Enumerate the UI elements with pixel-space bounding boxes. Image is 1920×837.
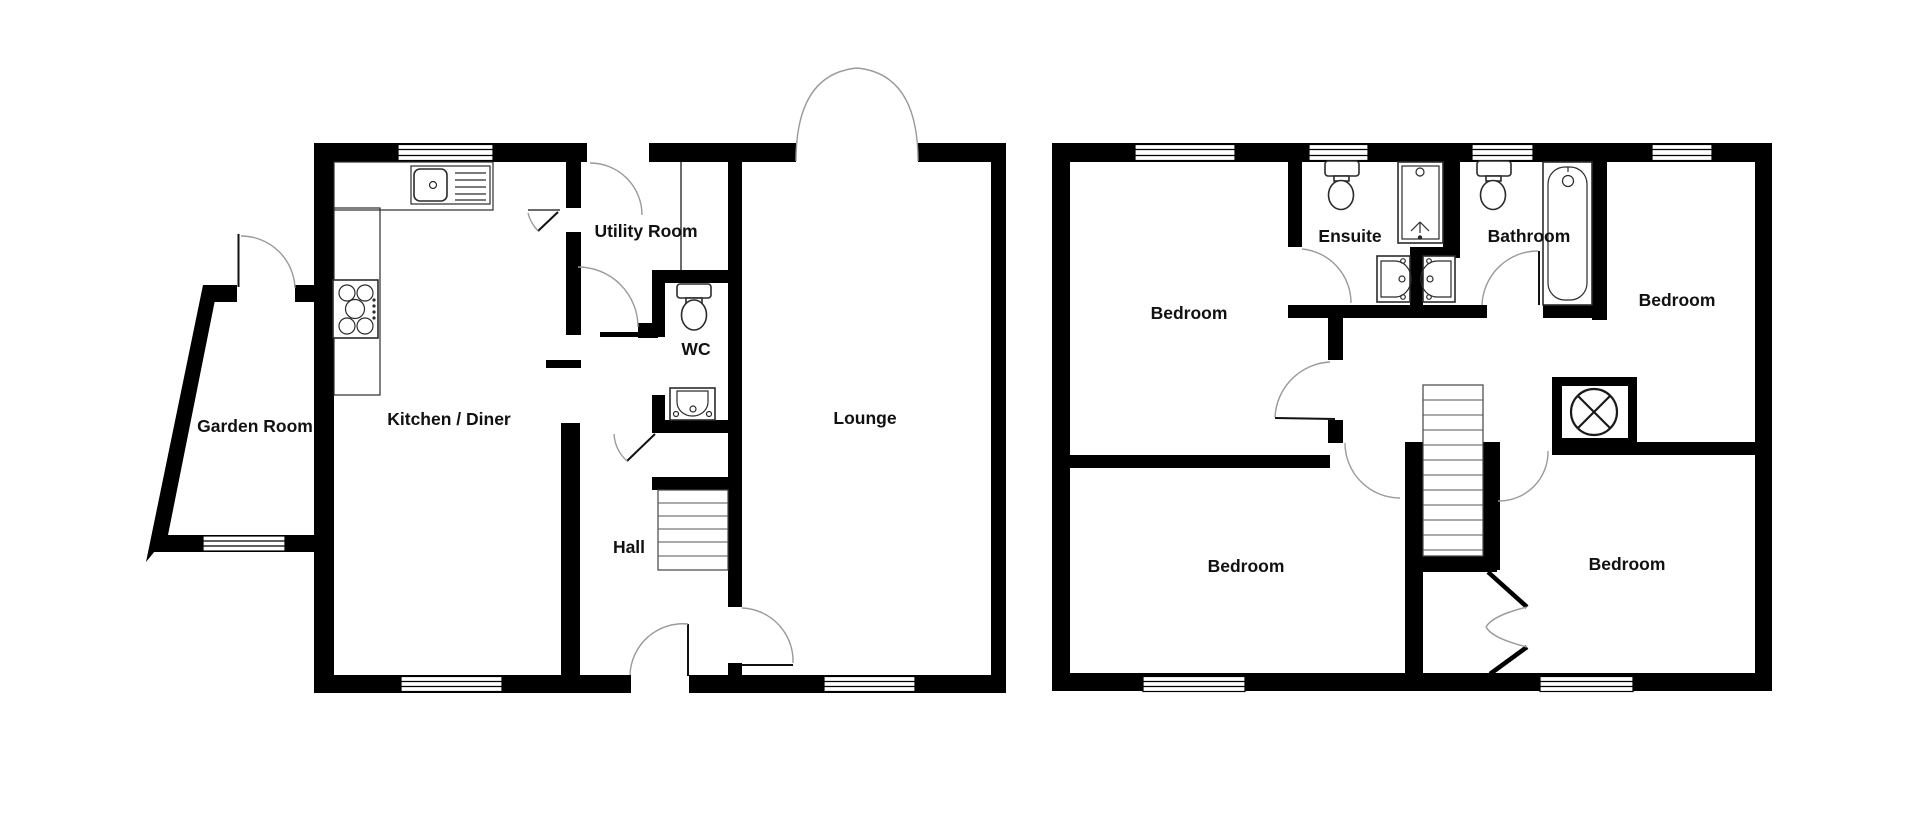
utility-door-gap: [587, 141, 649, 164]
wc-toilet-icon: [677, 284, 711, 330]
garden-room-door: [239, 234, 296, 288]
kitchen-utility-door: [528, 210, 560, 231]
lounge-door: [742, 608, 793, 665]
room-label-utility-room: Utility Room: [594, 221, 697, 241]
bathroom-basin-icon: [1421, 256, 1455, 302]
floorplan-page: Garden Room Kitchen / Diner Utility Room…: [0, 0, 1920, 837]
room-label-bedroom-top-right: Bedroom: [1639, 290, 1716, 310]
room-label-garden-room: Garden Room: [197, 416, 313, 436]
utility-room-door: [590, 163, 642, 215]
first-stairs: [1423, 385, 1483, 556]
bathroom-window: [1472, 145, 1533, 161]
kitchen-sink-icon: [411, 166, 490, 204]
bedroom-br-window: [1540, 677, 1633, 692]
ground-stairs: [658, 490, 728, 570]
garden-room-window: [203, 536, 285, 551]
room-label-bedroom-top-left: Bedroom: [1151, 303, 1228, 323]
bedroom-tr-window: [1652, 145, 1712, 161]
ensuite-window: [1309, 145, 1368, 161]
room-label-kitchen-diner: Kitchen / Diner: [387, 409, 511, 429]
lounge-bottom-window: [824, 677, 915, 692]
kitchen-bottom-window: [401, 677, 502, 692]
room-label-lounge: Lounge: [833, 408, 896, 428]
bedroom-bl-window: [1143, 677, 1245, 692]
wardrobe-cupboard-icon: [1552, 377, 1637, 448]
bathroom-door: [1482, 251, 1539, 305]
bifold-door: [1486, 572, 1527, 674]
ensuite-basin-icon: [1377, 256, 1411, 302]
ensuite-toilet-icon: [1325, 161, 1359, 210]
wc-door: [614, 434, 655, 461]
room-label-bathroom: Bathroom: [1488, 226, 1571, 246]
wc-basin-icon: [670, 388, 715, 420]
bedroom-bl-door: [1345, 443, 1400, 498]
kitchen-top-window: [398, 145, 493, 161]
room-label-bedroom-bottom-right: Bedroom: [1589, 554, 1666, 574]
french-door-gap: [796, 141, 918, 162]
ground-floor-plan: Garden Room Kitchen / Diner Utility Room…: [146, 68, 1006, 695]
kitchen-hall-door: [578, 267, 638, 327]
first-floor-plan: Bedroom Ensuite Bathroom Bedroom Bedroom…: [1052, 143, 1772, 692]
bedroom-tl-window: [1135, 145, 1235, 161]
bedroom-br-door: [1498, 451, 1548, 501]
bathroom-toilet-icon: [1477, 161, 1511, 210]
room-label-hall: Hall: [613, 537, 645, 557]
hob-icon: [333, 280, 378, 338]
bedroom-tl-door: [1275, 362, 1335, 419]
ensuite-door: [1302, 249, 1351, 303]
shower-icon: [1398, 162, 1443, 243]
front-door-gap: [631, 673, 689, 695]
room-label-bedroom-bottom-left: Bedroom: [1208, 556, 1285, 576]
front-door: [630, 624, 688, 676]
room-label-wc: WC: [681, 339, 711, 359]
room-label-ensuite: Ensuite: [1318, 226, 1381, 246]
floorplan-drawing: Garden Room Kitchen / Diner Utility Room…: [0, 0, 1920, 837]
